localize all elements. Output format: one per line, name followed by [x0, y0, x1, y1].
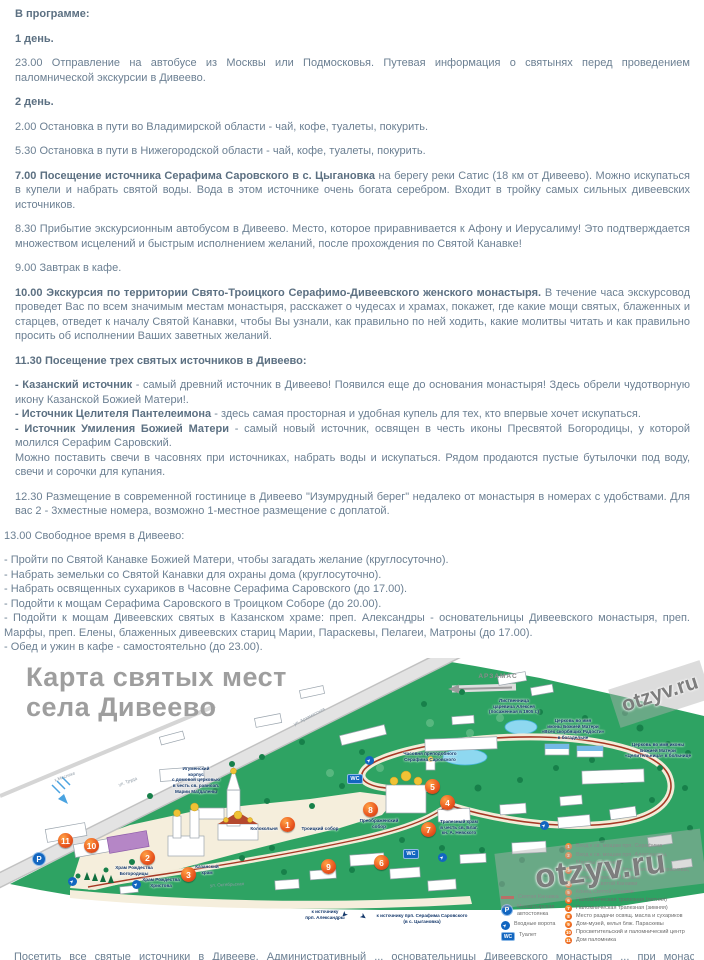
- legend-label: Паломническая трапезная (летняя): [576, 897, 702, 905]
- program-paragraph: 5.30 Остановка в пути в Нижегородской об…: [15, 144, 690, 159]
- entrance-gate-icon: ➤: [540, 821, 549, 830]
- label-abbess-building: Игуменский корпус с домовой церковью в ч…: [163, 766, 229, 795]
- page: В программе: 1 день. 23.00 Отправление н…: [0, 0, 704, 960]
- wc-icon: WC: [347, 774, 363, 784]
- map-marker-8: 8: [363, 802, 378, 817]
- program-paragraph: - Источник Умиления Божией Матери - самы…: [15, 422, 690, 451]
- entrance-gate-icon: ➤: [68, 877, 77, 886]
- map-marker-1: 1: [280, 817, 295, 832]
- day2-heading: 2 день.: [15, 95, 690, 110]
- entrance-gate-icon: ➤: [132, 880, 141, 889]
- program-paragraph: 10.00 Экскурсия по территории Свято-Трои…: [15, 286, 690, 344]
- legend-label: Дом-музей, келья блж. Параскевы: [576, 921, 702, 929]
- legend-item-6: 6Паломническая трапезная (летняя): [565, 897, 702, 905]
- wc-icon: WC: [403, 849, 419, 859]
- sources-heading: 11.30 Посещение трех святых источников в…: [15, 354, 690, 369]
- label-almshouse-church: Церковь во имя иконы Божией Матери «Всех…: [527, 718, 619, 741]
- label-to-seraphim-spring: к источнику прп. Серафима Саровского (в …: [370, 913, 474, 924]
- map-section: Карта святых мест села Дивеево АРЗАМАС 1…: [0, 658, 704, 960]
- label-hospital-church: Церковь во имя иконы Божией Матери «Цели…: [612, 742, 704, 759]
- label-trinity-cathedral: Троицкий собор: [292, 826, 348, 832]
- legend-item-10: 10Просветительский и паломнический центр: [565, 929, 702, 937]
- legend-item-8: 8Место раздачи освящ. масла и сухариков: [565, 913, 702, 921]
- parking-icon: P: [32, 852, 46, 866]
- blue-roof-1: [545, 744, 569, 749]
- map-marker-5: 5: [425, 779, 440, 794]
- legend-label: Монастырская автостоянка: [517, 904, 554, 918]
- blue-roof-2: [577, 746, 603, 751]
- legend-number: 8: [565, 913, 572, 920]
- legend-label: Место раздачи освящ. масла и сухариков: [576, 913, 702, 921]
- program-paragraph: Можно поставить свечи в часовнях при ист…: [15, 451, 690, 480]
- legend-label: Просветительский и паломнический центр: [576, 929, 702, 937]
- legend-label: Паломническая трапезная (зимняя): [576, 905, 702, 913]
- legend-number: 11: [565, 937, 572, 944]
- map-marker-3: 3: [181, 867, 196, 882]
- legend-row-wc: WC Туалет: [501, 932, 536, 941]
- program-paragraph: 23.00 Отправление на автобусе из Москвы …: [15, 56, 690, 85]
- program-paragraph: 7.00 Посещение источника Серафима Саровс…: [15, 169, 690, 213]
- bullet-item: - Подойти к мощам Серафима Саровского в …: [4, 597, 690, 612]
- wc-icon: WC: [501, 932, 515, 941]
- map-title: Карта святых мест села Дивеево: [26, 662, 287, 722]
- program-text: В программе: 1 день. 23.00 Отправление н…: [0, 0, 704, 655]
- legend-number: 10: [565, 929, 572, 936]
- program-paragraph: 8.30 Прибытие экскурсионным автобусом в …: [15, 222, 690, 251]
- legend-label: Дом паломника: [576, 937, 702, 945]
- legend-item-7: 7Паломническая трапезная (зимняя): [565, 905, 702, 913]
- program-heading: В программе:: [15, 7, 690, 22]
- bullet-item: - Подойти к мощам Дивеевских святых в Ка…: [4, 611, 690, 640]
- free-time-heading: 13.00 Свободное время в Дивеево:: [4, 529, 690, 544]
- program-paragraph: 2.00 Остановка в пути во Владимирской об…: [15, 120, 690, 135]
- label-nativity-theotokos-church: Храм Рождества Богородицы: [103, 865, 165, 876]
- bullet-item: - Набрать земельки со Святой Канавки для…: [4, 568, 690, 583]
- map-title-line1: Карта святых мест: [26, 662, 287, 692]
- map-marker-7: 7: [421, 822, 436, 837]
- label-larch: Лиственница царевича Алексея (посаженная…: [469, 698, 559, 715]
- map-marker-11: 11: [58, 833, 73, 848]
- legend-label: Входные ворота: [514, 921, 555, 928]
- legend-number: 9: [565, 921, 572, 928]
- legend-row-gate: ➤ Входные ворота: [501, 921, 555, 930]
- bullet-item: - Пройти по Святой Канавке Божией Матери…: [4, 553, 690, 568]
- entrance-gate-icon: ➤: [501, 921, 510, 930]
- bullet-item: - Набрать освященных сухариков в Часовне…: [4, 582, 690, 597]
- entrance-gate-icon: ➤: [365, 756, 374, 765]
- program-paragraph: - Казанский источник - самый древний ист…: [15, 378, 690, 407]
- map-title-line2: села Дивеево: [26, 692, 287, 722]
- label-seraphim-chapel: Часовня преподобного Серафима Саровского: [388, 751, 472, 762]
- map-marker-6: 6: [374, 855, 389, 870]
- legend-item-9: 9Дом-музей, келья блж. Параскевы: [565, 921, 702, 929]
- clipped-bottom-text: Посетить все святые источники в Дивееве.…: [14, 945, 694, 960]
- bullet-item: - Обед и ужин в кафе - самостоятельно (д…: [4, 640, 690, 655]
- city-arrow-label: АРЗАМАС: [462, 673, 534, 680]
- program-paragraph: - Источник Целителя Пантелеимона - здесь…: [15, 407, 690, 422]
- legend-label: Туалет: [519, 932, 536, 939]
- map-marker-4: 4: [440, 795, 455, 810]
- legend-item-11: 11Дом паломника: [565, 937, 702, 945]
- free-time-block: 13.00 Свободное время в Дивеево: - Пройт…: [4, 529, 690, 655]
- program-paragraph: 9.00 Завтрак в кафе.: [15, 261, 690, 276]
- label-transfiguration-cathedral: Преображенский собор: [350, 818, 408, 829]
- program-paragraph: 12.30 Размещение в современной гостинице…: [15, 490, 690, 519]
- map-marker-9: 9: [321, 859, 336, 874]
- map-marker-2: 2: [140, 850, 155, 865]
- label-refectory-church: Трапезный храм в честь св. Благ. кн. А. …: [432, 819, 486, 836]
- day1-heading: 1 день.: [15, 32, 690, 47]
- legend-number: 7: [565, 905, 572, 912]
- entrance-gate-icon: ➤: [438, 853, 447, 862]
- map-marker-10: 10: [84, 838, 99, 853]
